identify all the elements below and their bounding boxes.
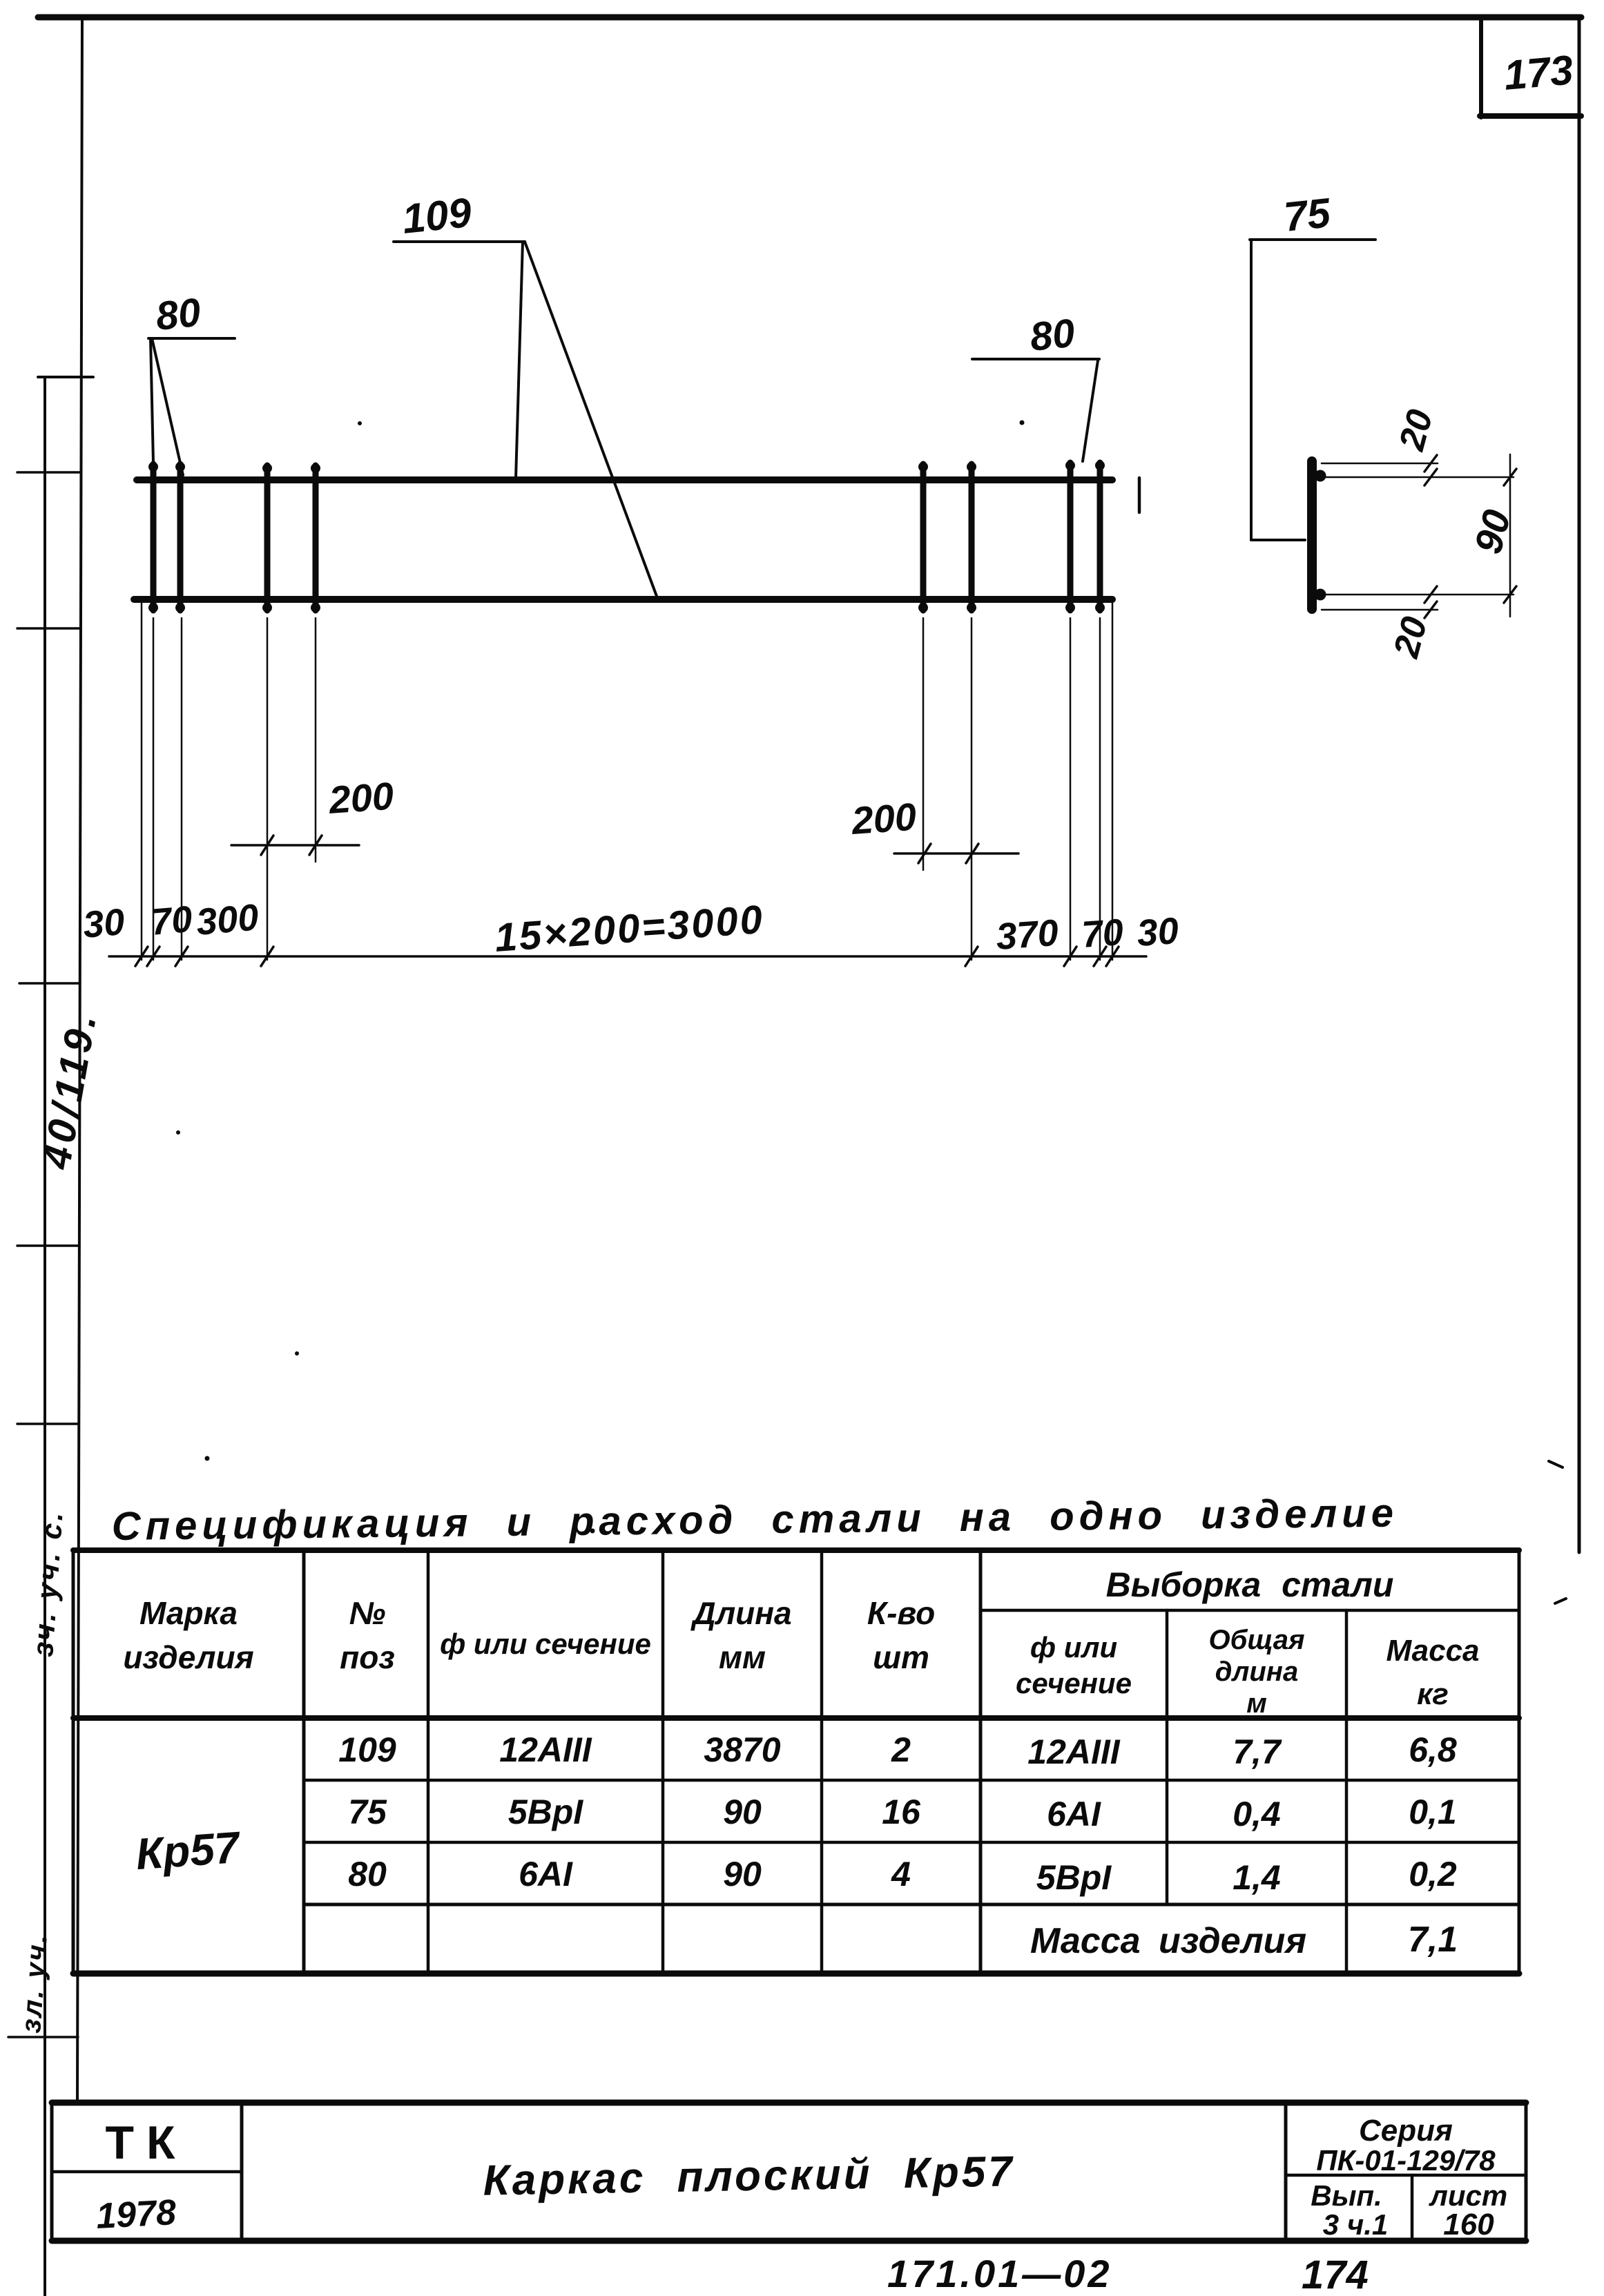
leader-109 — [394, 242, 657, 598]
cell-gsection: 12АIII — [1027, 1733, 1121, 1771]
col-header-glength-line3: м — [1246, 1688, 1267, 1719]
cell-qty: 4 — [891, 1855, 911, 1893]
dim-20-top: 20 — [1391, 405, 1440, 455]
dim-200-left — [231, 836, 359, 855]
col-header-gsection-line2: сечение — [1016, 1667, 1132, 1699]
label-pos-75: 75 — [1282, 189, 1333, 240]
titleblock-sheet-value: 160 — [1443, 2208, 1494, 2241]
titleblock-issue-label: Вып. — [1311, 2179, 1382, 2212]
cell-pos: 109 — [338, 1730, 396, 1769]
cell-pos: 75 — [348, 1793, 387, 1831]
titleblock-series-value: ПК-01-129/78 — [1316, 2144, 1496, 2177]
cell-section: 12АIII — [499, 1730, 592, 1769]
col-header-marka-line1: Марка — [139, 1595, 238, 1631]
cell-length: 3870 — [704, 1730, 780, 1769]
cell-qty: 2 — [891, 1730, 911, 1769]
cell-gsection: 6АI — [1047, 1795, 1101, 1833]
label-pos-109: 109 — [400, 189, 474, 242]
cell-gsection: 5ВрI — [1036, 1858, 1112, 1897]
page-number: 173 — [1502, 46, 1575, 98]
cell-glength: 7,7 — [1233, 1733, 1282, 1771]
col-header-pos-line2: поз — [340, 1639, 395, 1675]
cell-length: 90 — [723, 1855, 762, 1893]
table-row: 75 5ВрI 90 16 6АI 0,4 0,1 — [348, 1793, 1457, 1833]
cell-glength: 0,4 — [1233, 1795, 1281, 1833]
cell-section: 6АI — [519, 1855, 573, 1893]
col-header-gmass-line2: кг — [1417, 1677, 1449, 1711]
col-header-marka-line2: изделия — [123, 1639, 253, 1675]
col-header-qty-line2: шт — [873, 1639, 929, 1675]
margin-note-3: зл. уч. — [16, 1932, 53, 2034]
titleblock-series-label: Серия — [1359, 2114, 1453, 2148]
titleblock-issue-value: 3 ч.1 — [1323, 2208, 1389, 2241]
titleblock-title: Каркас плоский Кр57 — [483, 2148, 1015, 2204]
dim-200-right-label: 200 — [849, 795, 918, 842]
col-header-glength-line2: длина — [1215, 1657, 1298, 1687]
dim-30-left: 30 — [81, 901, 126, 946]
dim-200-left-label: 200 — [327, 774, 395, 822]
leader-80-left — [148, 338, 235, 475]
col-header-gmass-line1: Масса — [1386, 1634, 1479, 1668]
dim-30-right: 30 — [1136, 910, 1180, 954]
drawing-sheet: 173 40/119. зч. уч. с. зл. уч. — [0, 0, 1604, 2296]
dim-70-right: 70 — [1081, 911, 1125, 956]
margin-note-2: зч. уч. с. — [26, 1508, 69, 1657]
spec-table-grid — [73, 1550, 1519, 1974]
total-value: 7,1 — [1408, 1920, 1458, 1960]
dim-series: 15×200=3000 — [493, 897, 766, 961]
cell-gmass: 0,2 — [1409, 1855, 1457, 1893]
cell-mark: Кр57 — [134, 1822, 243, 1879]
sheet-frame — [38, 17, 1581, 2296]
dim-70-left: 70 — [149, 898, 194, 943]
col-header-gsection-line1: ф или — [1030, 1631, 1117, 1663]
dim-370: 370 — [995, 912, 1060, 958]
table-row: 80 6АI 90 4 5ВрI 1,4 0,2 — [348, 1855, 1457, 1897]
dim-200-right — [894, 844, 1018, 863]
titleblock-sheet-label: лист — [1429, 2179, 1508, 2212]
col-header-length-line1: Длина — [690, 1595, 791, 1631]
total-label: Масса изделия — [1030, 1921, 1306, 1961]
col-header-section: ф или сечение — [440, 1628, 651, 1660]
titleblock-org: ТК — [105, 2116, 187, 2169]
spec-table-title: Спецификация и расход стали на одно изде… — [111, 1490, 1398, 1549]
cell-length: 90 — [723, 1793, 762, 1831]
cell-pos: 80 — [348, 1855, 387, 1893]
dim-300: 300 — [195, 896, 260, 943]
col-header-glength-line1: Общая — [1208, 1625, 1304, 1655]
label-pos-80-left: 80 — [154, 290, 203, 339]
footer-stamp: 171.01—02 — [887, 2252, 1112, 2295]
cage-plan-crossbars — [153, 463, 1100, 610]
cell-gmass: 0,1 — [1409, 1793, 1457, 1831]
leader-80-right — [972, 359, 1099, 461]
group-header-vyborka: Выборка стали — [1106, 1565, 1394, 1604]
col-header-pos-line1: № — [349, 1595, 386, 1631]
table-row: 109 12АIII 3870 2 12АIII 7,7 6,8 — [338, 1730, 1457, 1771]
footer-next-page: 174 — [1302, 2252, 1369, 2296]
col-header-length-line2: мм — [719, 1639, 766, 1675]
label-pos-80-right: 80 — [1028, 311, 1077, 360]
cell-section: 5ВрI — [508, 1793, 583, 1831]
cell-gmass: 6,8 — [1409, 1730, 1457, 1769]
cell-qty: 16 — [882, 1793, 921, 1831]
titleblock-year: 1978 — [95, 2192, 177, 2237]
dim-20-bottom: 20 — [1386, 612, 1435, 662]
cell-glength: 1,4 — [1233, 1858, 1281, 1897]
cage-plan-chords — [134, 480, 1112, 599]
col-header-qty-line1: К-во — [867, 1595, 935, 1631]
